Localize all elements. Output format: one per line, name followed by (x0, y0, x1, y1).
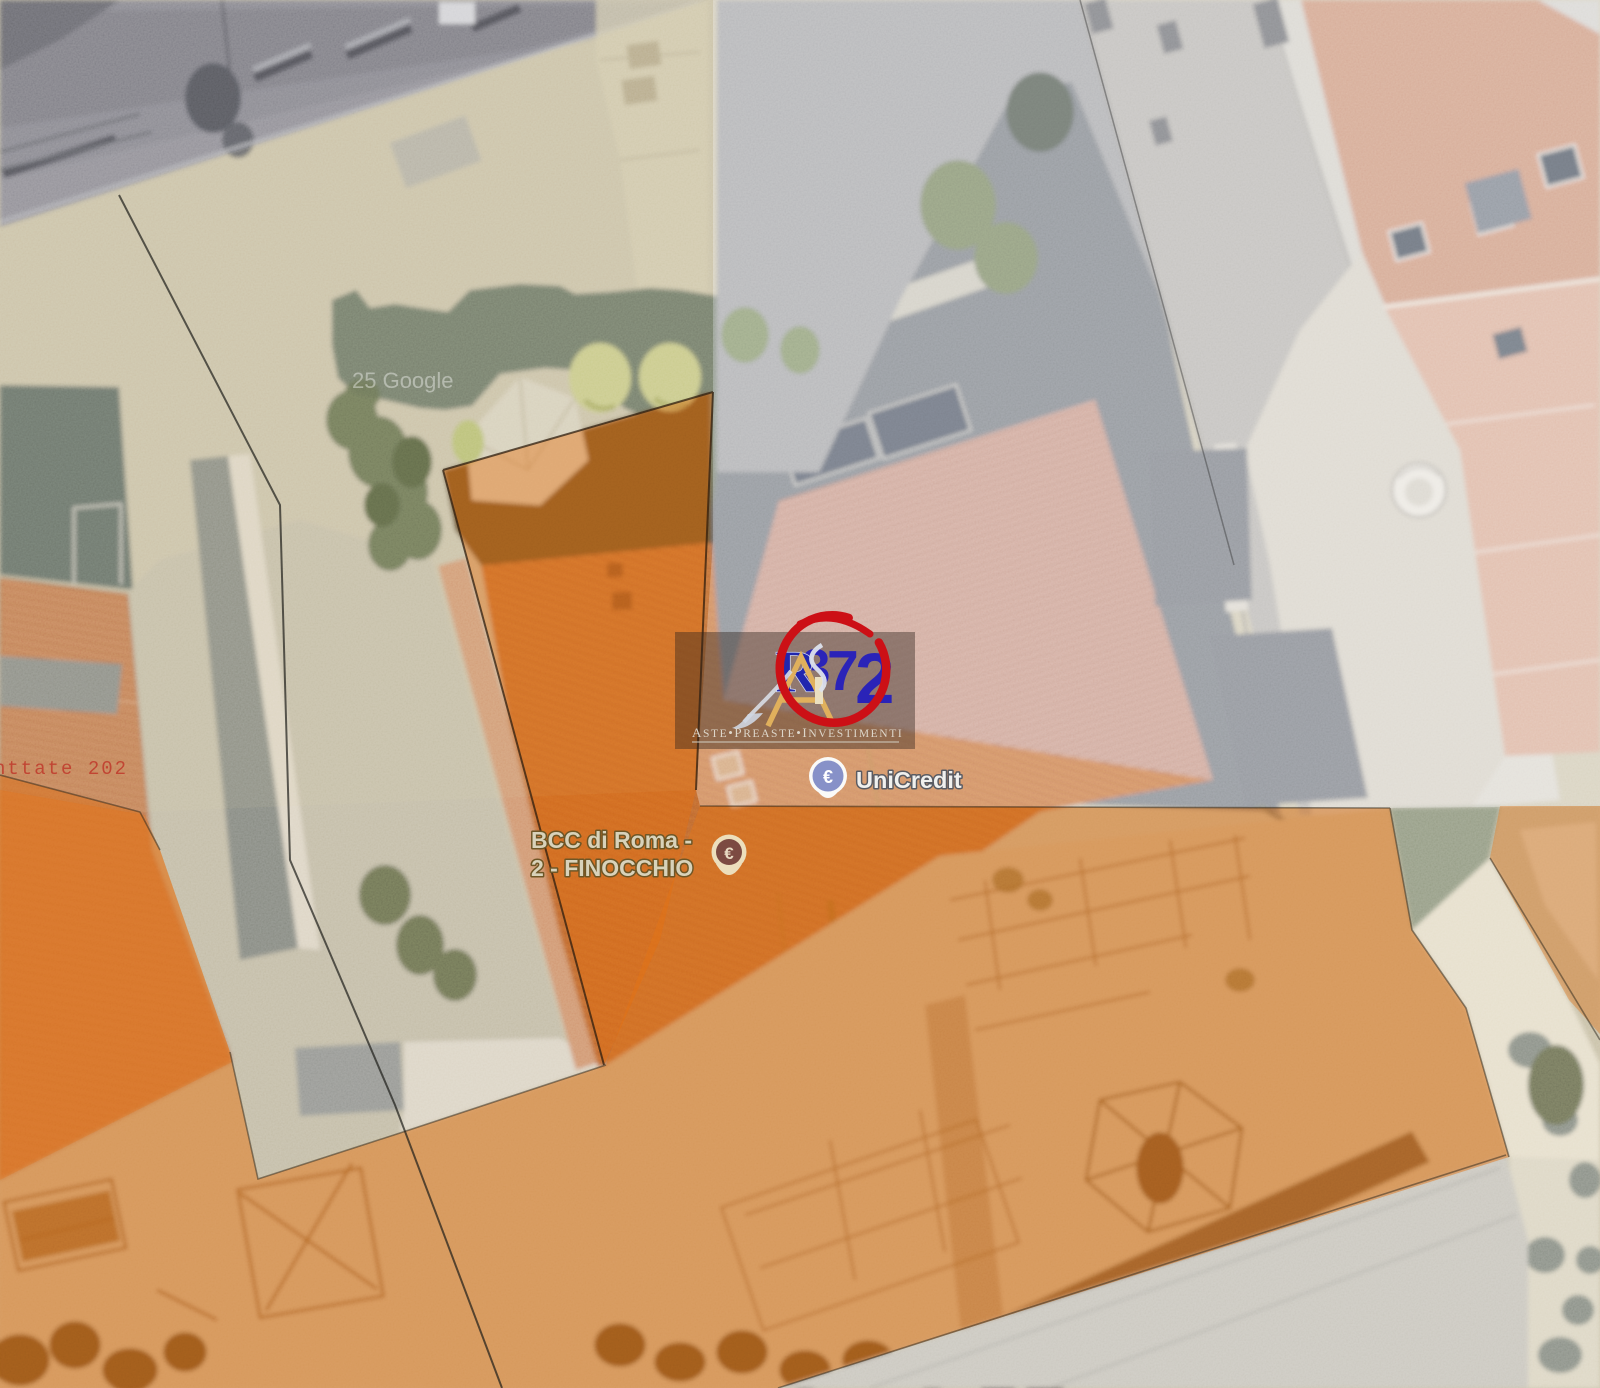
svg-text:2 - FINOCCHIO: 2 - FINOCCHIO (531, 855, 693, 881)
svg-text:€: € (724, 844, 734, 863)
svg-text:ASTE•PREASTE•INVESTIMENTI: ASTE•PREASTE•INVESTIMENTI (692, 725, 903, 740)
svg-text:BCC di Roma -: BCC di Roma - (531, 827, 692, 853)
svg-text:UniCredit: UniCredit (856, 767, 962, 793)
svg-text:nttate 202: nttate 202 (0, 758, 128, 780)
svg-text:25 Google: 25 Google (352, 368, 454, 393)
svg-text:7: 7 (827, 639, 859, 703)
svg-text:€: € (823, 767, 833, 787)
